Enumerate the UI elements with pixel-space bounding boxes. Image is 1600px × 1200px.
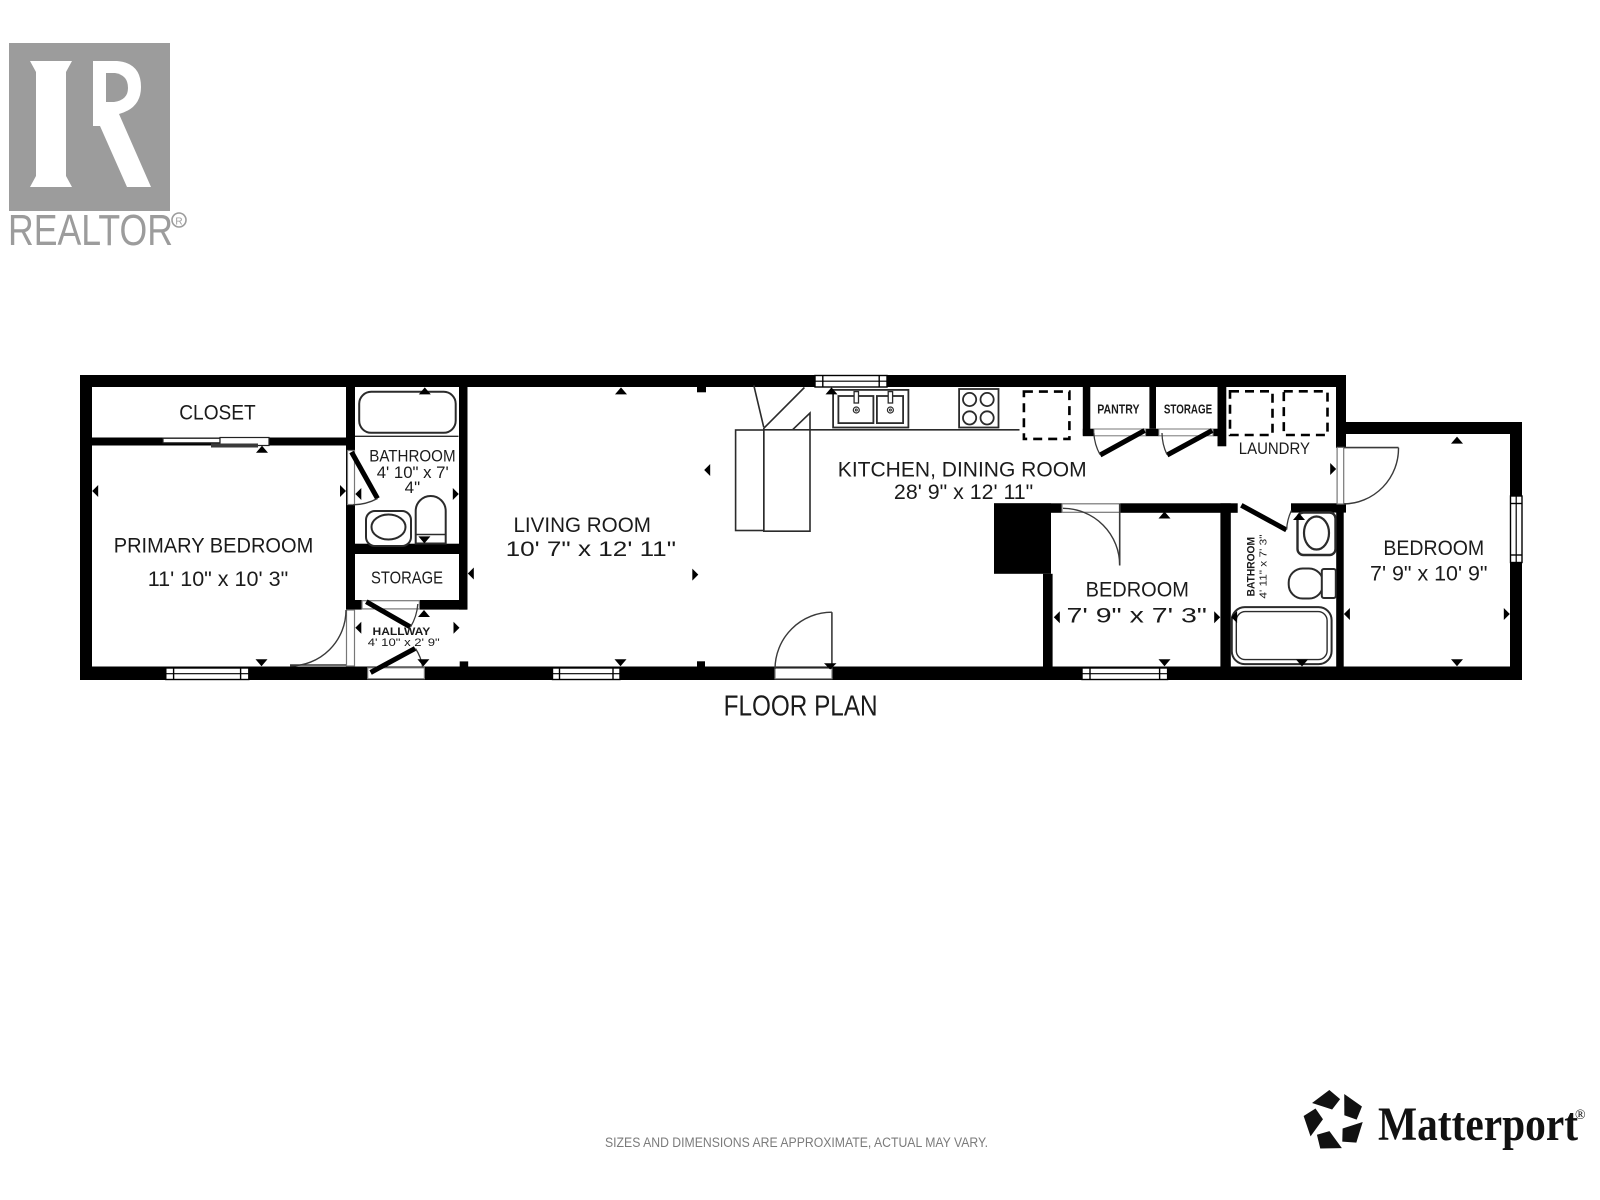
- svg-text:BEDROOM: BEDROOM: [1086, 578, 1189, 601]
- svg-text:SIZES AND DIMENSIONS ARE APPRO: SIZES AND DIMENSIONS ARE APPROXIMATE, AC…: [605, 1135, 988, 1150]
- svg-text:LAUNDRY: LAUNDRY: [1239, 440, 1310, 458]
- svg-text:4' 10" x 2' 9": 4' 10" x 2' 9": [368, 637, 440, 649]
- svg-text:PANTRY: PANTRY: [1097, 401, 1139, 416]
- svg-text:LIVING ROOM: LIVING ROOM: [513, 514, 651, 537]
- svg-text:®: ®: [1575, 1108, 1586, 1123]
- svg-text:KITCHEN, DINING ROOM: KITCHEN, DINING ROOM: [838, 459, 1087, 482]
- svg-text:STORAGE: STORAGE: [371, 568, 443, 588]
- svg-text:4": 4": [405, 478, 421, 497]
- svg-text:PRIMARY BEDROOM: PRIMARY BEDROOM: [114, 535, 314, 558]
- svg-text:7' 9" x 7' 3": 7' 9" x 7' 3": [1067, 604, 1207, 627]
- svg-text:CLOSET: CLOSET: [179, 401, 256, 424]
- svg-text:BEDROOM: BEDROOM: [1383, 537, 1484, 560]
- svg-text:4' 11" x 7' 3": 4' 11" x 7' 3": [1258, 534, 1270, 598]
- svg-text:FLOOR PLAN: FLOOR PLAN: [724, 691, 878, 723]
- svg-text:10' 7" x 12' 11": 10' 7" x 12' 11": [506, 538, 676, 561]
- svg-text:R: R: [175, 217, 182, 228]
- svg-text:11' 10" x 10' 3": 11' 10" x 10' 3": [148, 568, 289, 591]
- svg-text:REALTOR: REALTOR: [8, 206, 173, 255]
- svg-text:28' 9" x 12' 11": 28' 9" x 12' 11": [894, 481, 1033, 504]
- svg-text:7' 9" x 10' 9": 7' 9" x 10' 9": [1370, 562, 1488, 585]
- svg-text:Matterport: Matterport: [1378, 1098, 1578, 1151]
- svg-text:BATHROOM: BATHROOM: [1246, 537, 1258, 596]
- svg-text:STORAGE: STORAGE: [1164, 401, 1213, 416]
